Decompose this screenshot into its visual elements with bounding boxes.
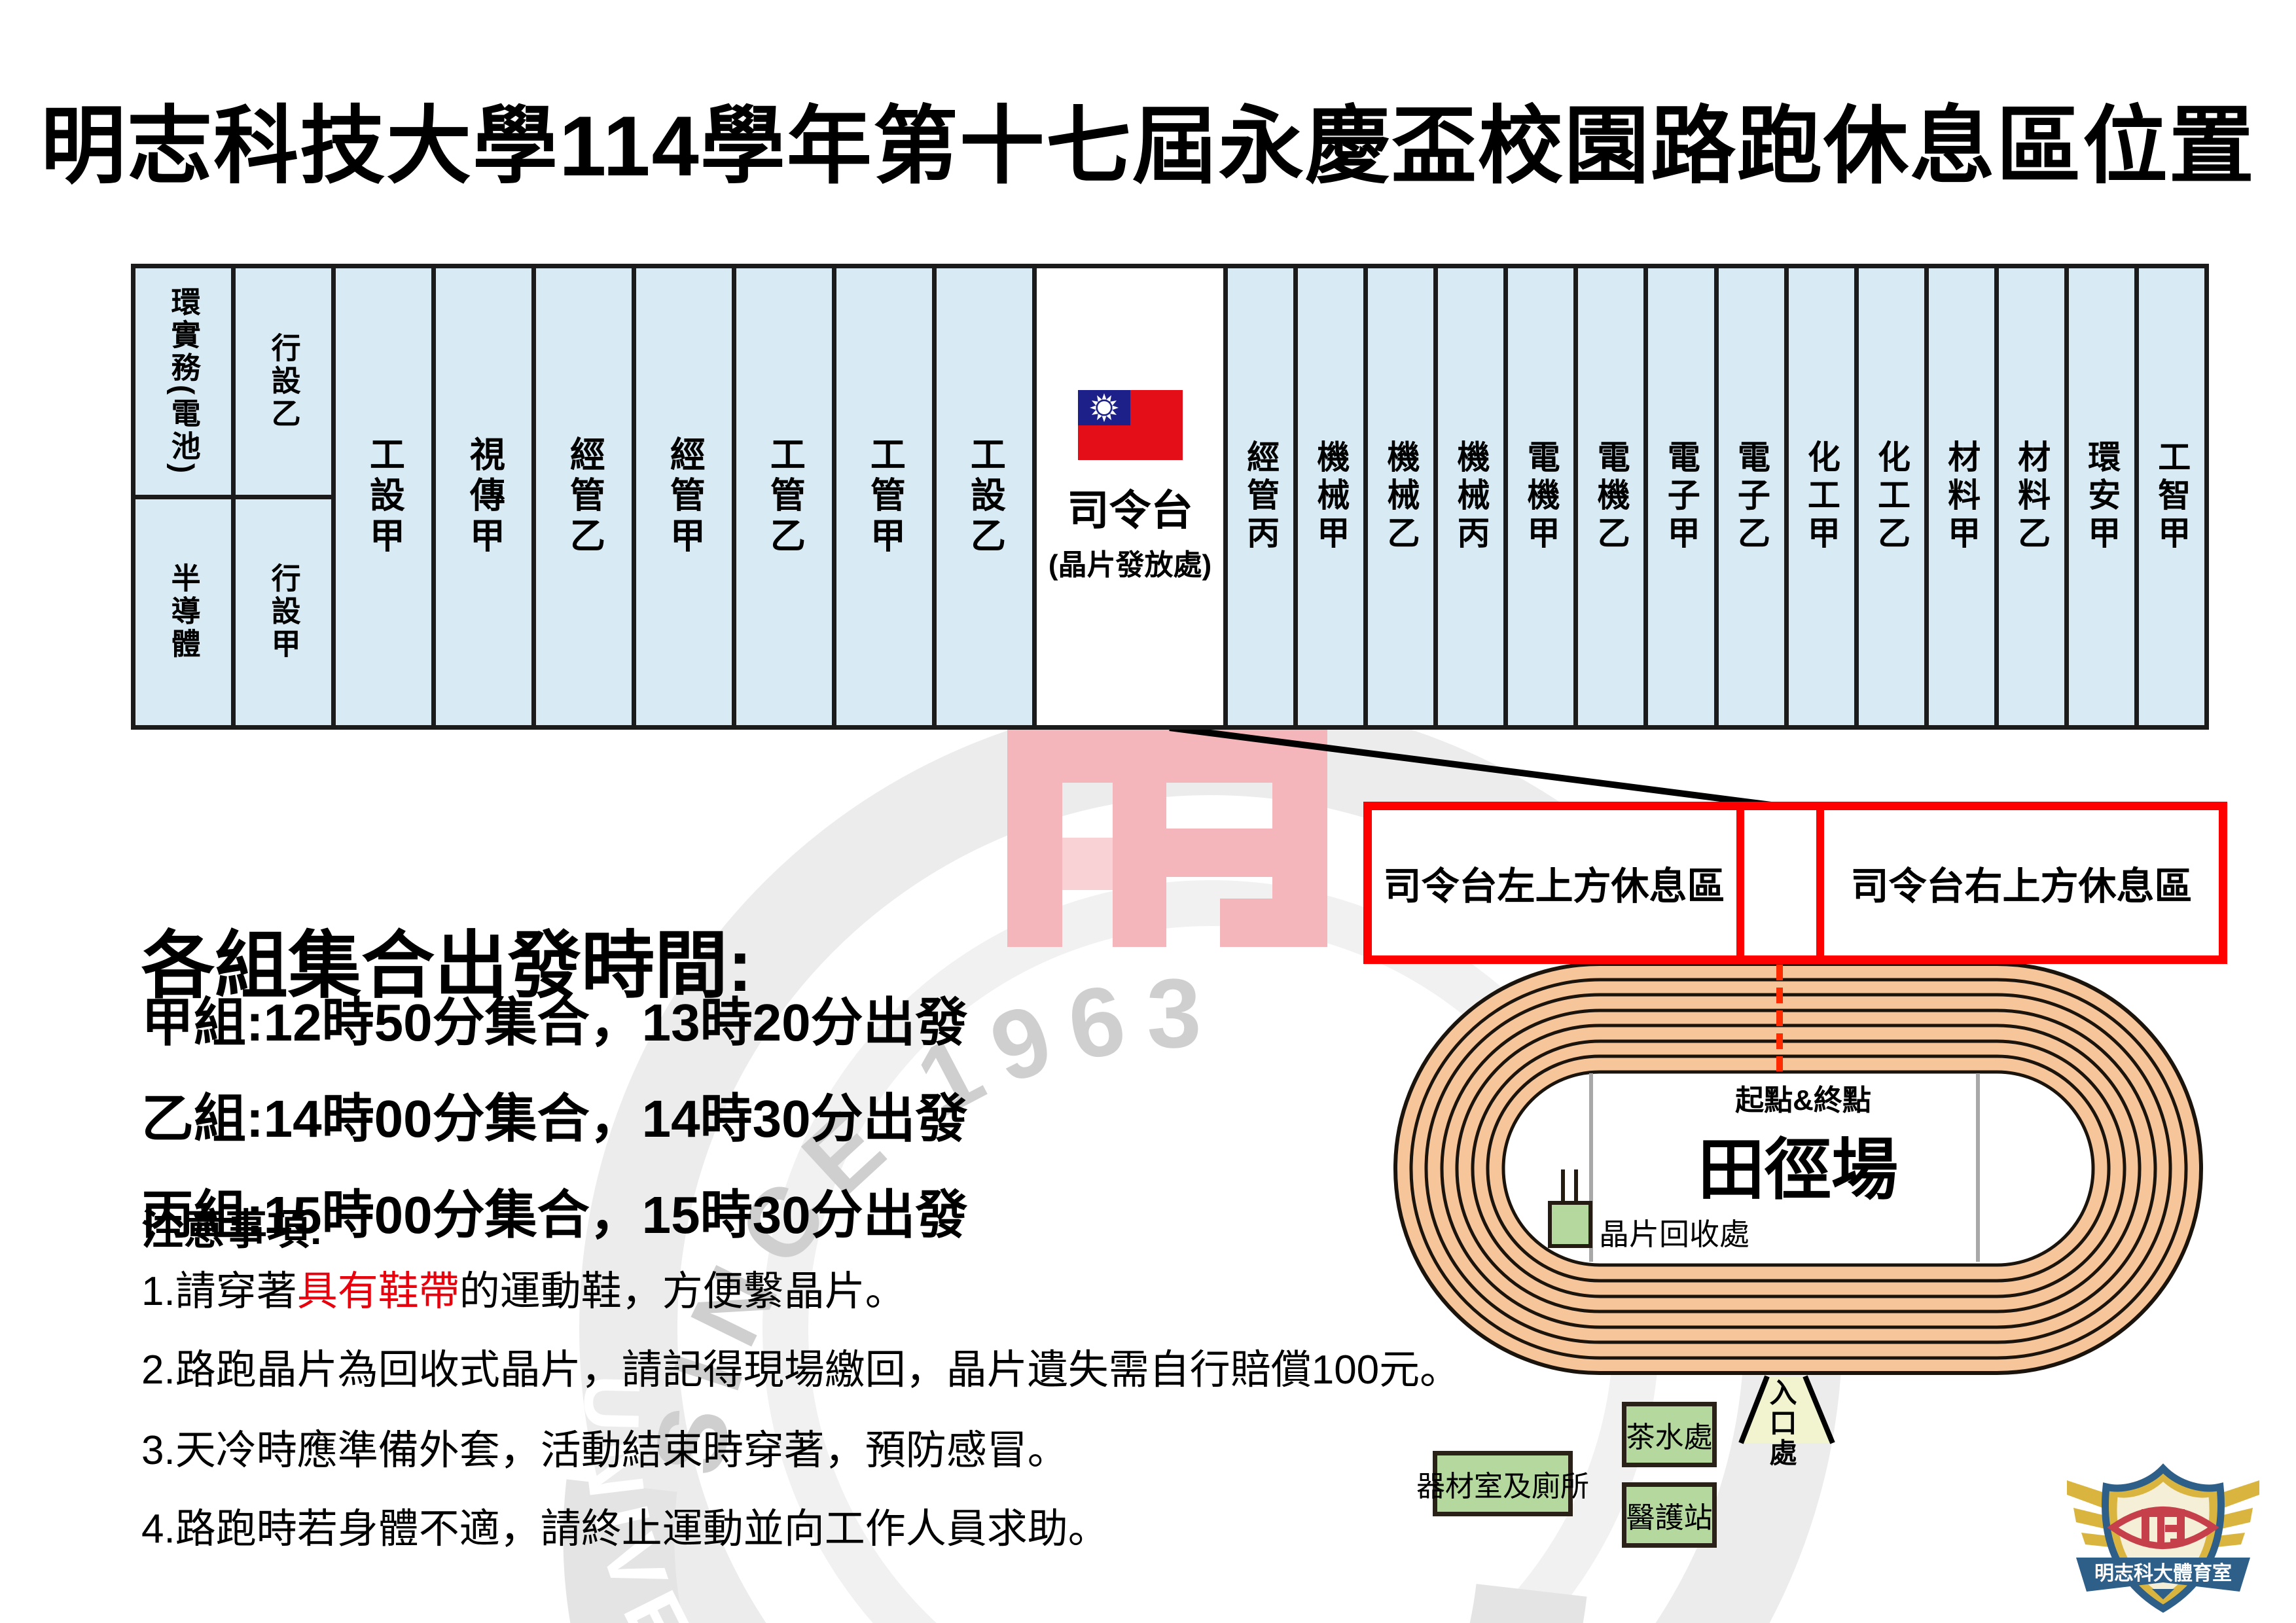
- column-label: 半導體: [168, 563, 198, 661]
- table-column: 電子乙: [1719, 268, 1789, 725]
- table-column: 化工乙: [1859, 268, 1929, 725]
- logo-banner-text: 明志科大體育室: [2094, 1562, 2232, 1584]
- hq-label: 司令台: [1067, 477, 1193, 537]
- table-column: 視傳甲: [436, 268, 536, 725]
- table-column-split: 環實務(電池) 半導體: [135, 268, 236, 725]
- equipment-room-box: 器材室及廁所: [1433, 1451, 1573, 1516]
- table-cell: 環實務(電池): [135, 268, 231, 499]
- column-label: 機械乙: [1384, 440, 1418, 554]
- taiwan-flag-icon: [1078, 390, 1183, 460]
- column-label: 工管甲: [866, 436, 903, 558]
- water-station-box: 茶水處: [1622, 1402, 1717, 1467]
- column-label: 工設甲: [365, 436, 403, 558]
- medical-station-box: 醫護站: [1622, 1482, 1717, 1548]
- table-column: 工設甲: [336, 268, 436, 725]
- table-column: 工管甲: [836, 268, 937, 725]
- table-column-split: 行設乙 行設甲: [236, 268, 336, 725]
- column-label: 行設乙: [268, 332, 298, 431]
- rest-area-table: 環實務(電池) 半導體 行設乙 行設甲 工設甲視傳甲經管乙經管甲工管乙工管甲工設…: [131, 264, 2209, 730]
- column-label: 環實務(電池): [168, 287, 198, 476]
- column-label: 材料甲: [1945, 440, 1979, 554]
- start-finish-label: 起點&終點: [1640, 1077, 1967, 1118]
- field-name-label: 田徑場: [1575, 1116, 2020, 1213]
- right-rest-area-label: 司令台右上方休息區: [1850, 855, 2192, 910]
- column-label: 經管甲: [666, 436, 703, 558]
- table-column: 機械乙: [1368, 268, 1438, 725]
- table-cell: 行設乙: [236, 268, 331, 499]
- column-label: 經管乙: [565, 436, 603, 558]
- red-divider: [1736, 810, 1744, 955]
- table-column: 機械甲: [1298, 268, 1368, 725]
- table-cell: 半導體: [135, 499, 231, 726]
- hq-pointer-line: [1170, 728, 1771, 805]
- table-column: 經管丙: [1228, 268, 1298, 725]
- table-column: 電子甲: [1648, 268, 1718, 725]
- column-label: 工設乙: [966, 436, 1003, 558]
- column-label: 化工甲: [1804, 440, 1839, 554]
- left-rest-area-box: 司令台左上方休息區: [1372, 810, 1736, 955]
- chip-return-label: 晶片回收處: [1599, 1211, 1749, 1254]
- table-column: 電機甲: [1508, 268, 1578, 725]
- table-column: 材料乙: [1999, 268, 2069, 725]
- column-label: 電子乙: [1734, 440, 1768, 554]
- table-cell: 行設甲: [236, 499, 331, 726]
- left-rest-area-label: 司令台左上方休息區: [1383, 855, 1725, 910]
- table-column: 化工甲: [1789, 268, 1859, 725]
- column-label: 環安甲: [2085, 440, 2119, 554]
- table-column: 工管乙: [736, 268, 836, 725]
- table-column: 經管乙: [536, 268, 636, 725]
- entrance-label: 入口處: [1767, 1378, 1795, 1469]
- column-label: 化工乙: [1874, 440, 1909, 554]
- right-rest-area-box: 司令台右上方休息區: [1824, 810, 2219, 955]
- column-label: 機械甲: [1314, 440, 1348, 554]
- column-label: 材料乙: [2015, 440, 2049, 554]
- poster-canvas: SINCE 1963 UNIVERSITY OF T: [0, 0, 2296, 1623]
- column-label: 工智甲: [2155, 440, 2189, 554]
- logo-ming-emblem-icon: [2142, 1509, 2185, 1546]
- sports-office-logo: 明志科大體育室: [2062, 1461, 2265, 1618]
- column-label: 機械丙: [1454, 440, 1488, 554]
- red-divider: [1816, 810, 1824, 955]
- stage-gap: [1744, 810, 1816, 955]
- column-label: 電機乙: [1594, 440, 1628, 554]
- water-station-label: 茶水處: [1626, 1414, 1713, 1455]
- table-column: 工智甲: [2139, 268, 2204, 725]
- table-column: 環安甲: [2069, 268, 2139, 725]
- stage-rest-areas: 司令台左上方休息區 司令台右上方休息區: [1363, 802, 2227, 964]
- equipment-room-label: 器材室及廁所: [1416, 1463, 1589, 1505]
- column-label: 電子甲: [1664, 440, 1698, 554]
- table-column: 電機乙: [1578, 268, 1648, 725]
- table-column: 工設乙: [937, 268, 1037, 725]
- table-column: 經管甲: [636, 268, 736, 725]
- column-label: 視傳甲: [465, 436, 503, 558]
- column-label: 經管丙: [1244, 440, 1278, 554]
- column-label: 工管乙: [766, 436, 803, 558]
- hq-sublabel: (晶片發放處): [1049, 541, 1211, 583]
- hq-column: 司令台 (晶片發放處): [1037, 268, 1228, 725]
- column-label: 電機甲: [1524, 440, 1558, 554]
- table-column: 材料甲: [1929, 268, 1999, 725]
- chip-return-box: [1548, 1201, 1592, 1248]
- table-column: 機械丙: [1438, 268, 1508, 725]
- column-label: 行設甲: [268, 563, 298, 661]
- medical-station-label: 醫護站: [1626, 1494, 1713, 1536]
